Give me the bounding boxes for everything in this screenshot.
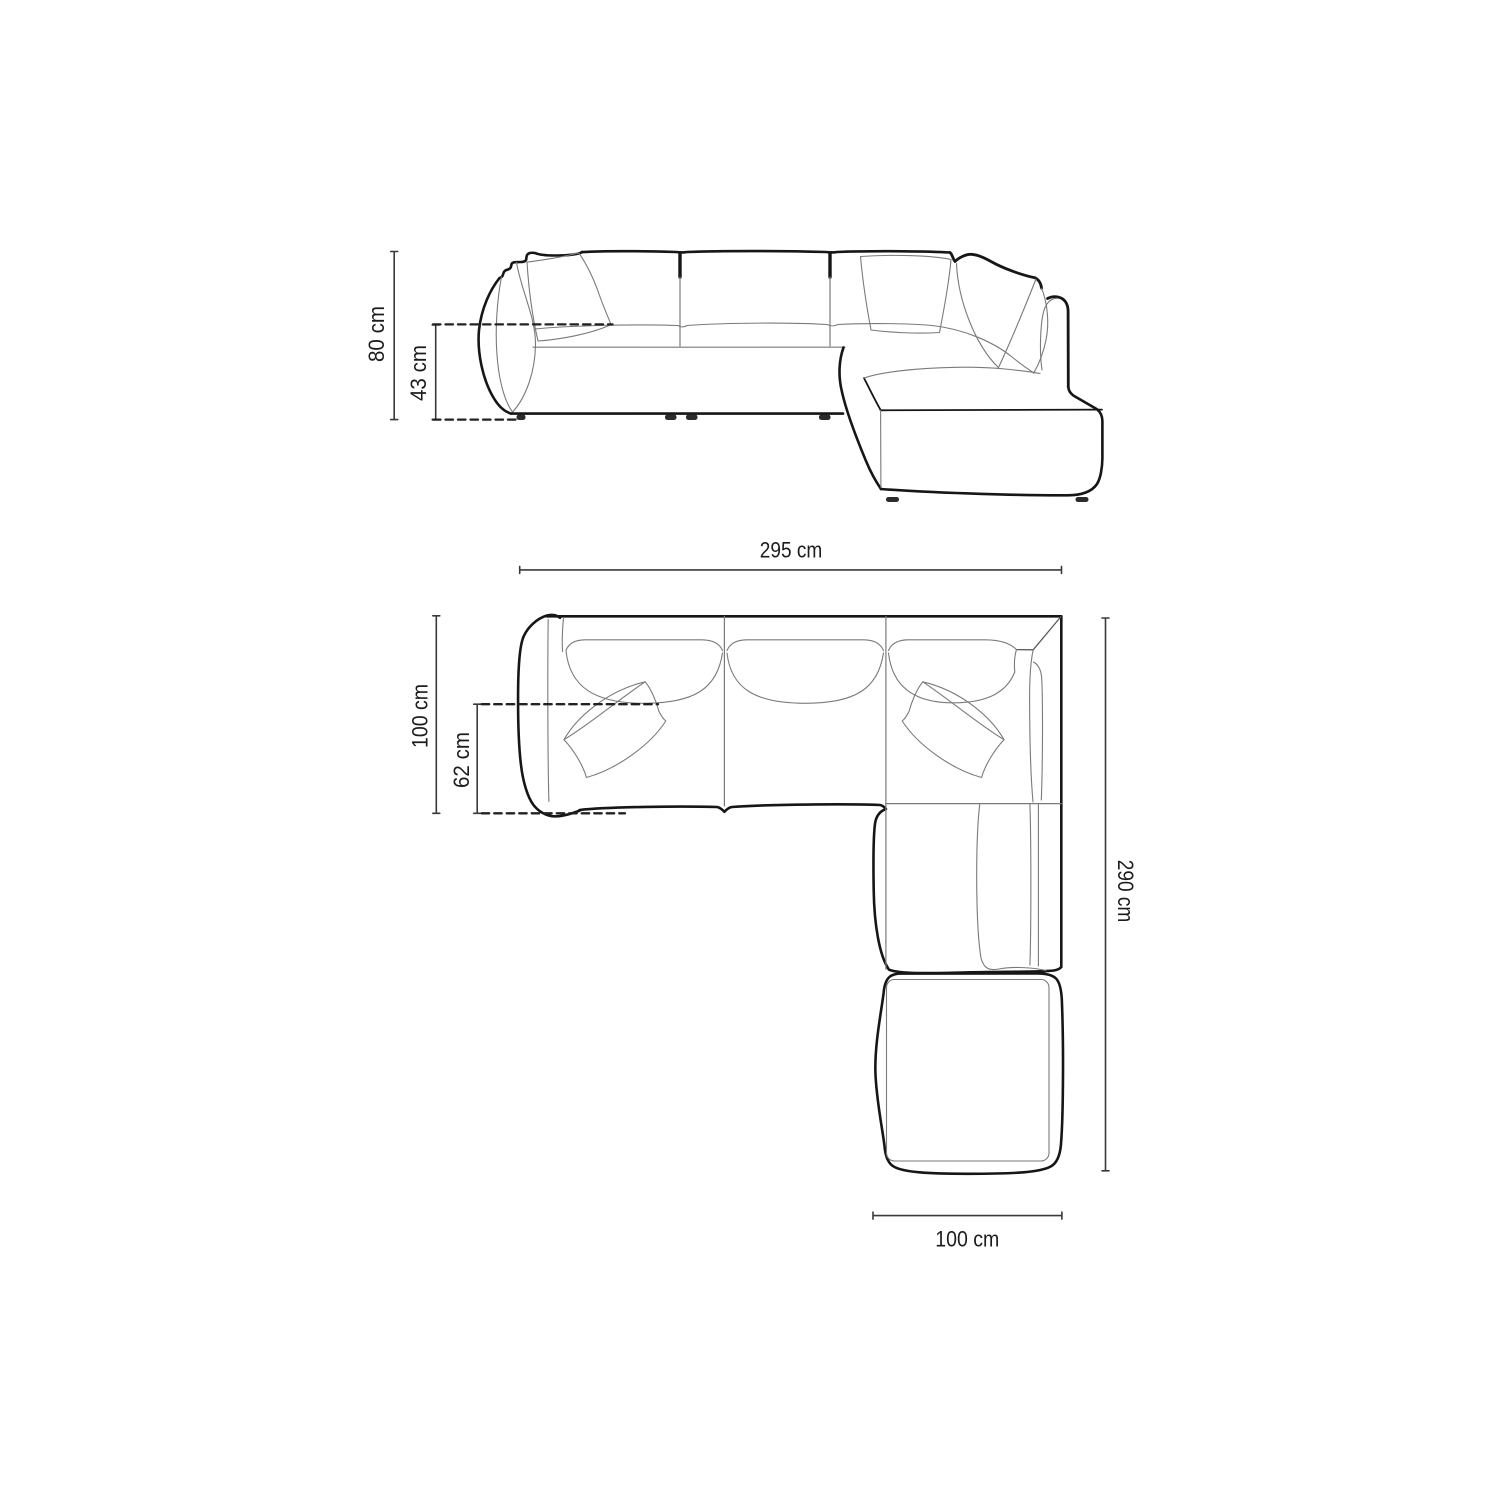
svg-text:100 cm: 100 cm [935,1227,999,1252]
svg-text:100 cm: 100 cm [408,684,433,748]
svg-text:290 cm: 290 cm [1113,860,1138,923]
svg-text:295 cm: 295 cm [760,538,823,563]
svg-text:62 cm: 62 cm [449,732,474,788]
svg-text:43 cm: 43 cm [406,345,431,401]
svg-text:80 cm: 80 cm [364,306,389,362]
